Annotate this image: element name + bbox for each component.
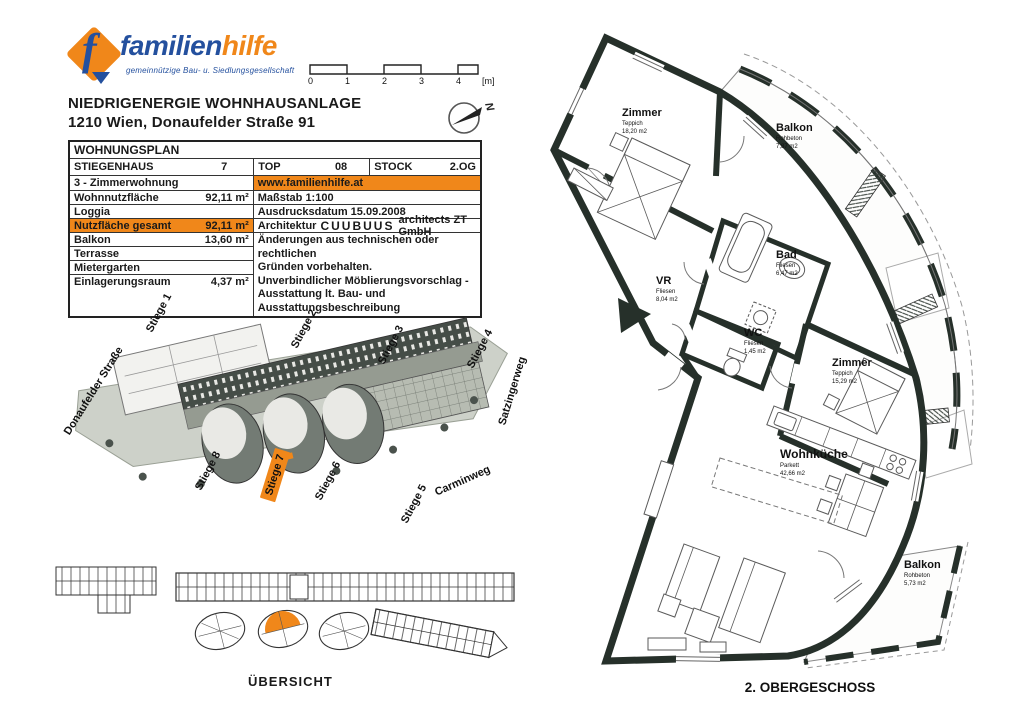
scale-bar-profile — [310, 65, 478, 74]
page-title: NIEDRIGENERGIE WOHNHAUSANLAGE 1210 Wien,… — [68, 94, 361, 132]
logo-word-familien: familien — [120, 30, 222, 61]
row-wohnungstyp: 3 - Zimmerwohnung — [70, 176, 253, 190]
logo-wordmark: familienhilfe — [120, 30, 277, 62]
uebersicht-strips — [40, 555, 520, 670]
left-strip-plan — [56, 567, 156, 613]
balkon2-area: 5,73 m2 — [904, 581, 926, 587]
logo-subtitle: gemeinnützige Bau- u. Siedlungsgesellsch… — [126, 66, 294, 75]
zimmer2-area: 15,29 m2 — [832, 379, 858, 385]
wohnkueche-area: 42,66 m2 — [780, 471, 806, 477]
right-strip-plan — [371, 609, 509, 660]
siteplan-overview: Donaufelder Straße Stiege 1 Stiege 2 Sti… — [35, 285, 520, 565]
balkon1-material: Rohbeton — [776, 136, 802, 142]
uebersicht-label: ÜBERSICHT — [248, 674, 333, 689]
vr-name: VR — [656, 275, 671, 287]
row-terrasse: Terrasse — [70, 246, 253, 260]
floorplan-caption: 2. OBERGESCHOSS — [745, 680, 876, 695]
north-letter: N — [482, 101, 496, 113]
siteplan-drawing — [35, 285, 520, 565]
north-arrow-icon: N — [440, 90, 500, 146]
apartment-outline — [554, 38, 924, 661]
balkon2-name: Balkon — [904, 559, 941, 571]
svg-text:2: 2 — [382, 76, 387, 86]
zimmer1-area: 18,20 m2 — [622, 129, 648, 135]
row-loggia: Loggia — [70, 204, 253, 218]
scale-bar: 0 1 2 3 4 [m] — [306, 54, 506, 86]
building-complex — [62, 285, 520, 530]
long-strip-plan — [176, 573, 514, 601]
title-line1: NIEDRIGENERGIE WOHNHAUSANLAGE — [68, 94, 361, 113]
balkon2-material: Rohbeton — [904, 573, 930, 579]
row-nutzflaeche-gesamt: Nutzfläche gesamt92,11 m² — [70, 218, 253, 232]
stock-cell: STOCK 2.OG — [369, 159, 480, 175]
familienhilfe-logo: f familienhilfe gemeinnützige Bau- u. Si… — [72, 28, 332, 88]
row-balkon: Balkon13,60 m² — [70, 232, 253, 246]
apartment-floorplan: Zimmer Teppich 18,20 m2 Balkon Rohbeton … — [548, 6, 1020, 718]
balkon1-area: 7,87 m2 — [776, 144, 798, 150]
wc-area: 1,45 m2 — [744, 349, 766, 355]
bad-name: Bad — [776, 249, 797, 261]
balkon1-name: Balkon — [776, 122, 813, 134]
svg-text:1: 1 — [345, 76, 350, 86]
wohnkueche-name: Wohnküche — [780, 447, 848, 461]
zimmer2-material: Teppich — [832, 371, 853, 377]
highlighted-oval — [254, 605, 311, 652]
zimmer1-name: Zimmer — [622, 107, 662, 119]
zimmer1-material: Teppich — [622, 121, 643, 127]
table-header: WOHNUNGSPLAN — [70, 142, 480, 158]
bad-material: Fliesen — [776, 263, 795, 269]
svg-text:4: 4 — [456, 76, 461, 86]
logo-word-hilfe: hilfe — [222, 30, 277, 61]
vr-area: 8,04 m2 — [656, 297, 678, 303]
bad-area: 6,47 m2 — [776, 271, 798, 277]
row-mietergarten: Mietergarten — [70, 260, 253, 274]
title-line2: 1210 Wien, Donaufelder Straße 91 — [68, 113, 361, 132]
zimmer2-name: Zimmer — [832, 357, 872, 369]
oval-plans — [191, 605, 372, 654]
architektur-cell: Architektur CUUBUUS architects ZT GmbH — [254, 218, 480, 232]
wohnkueche-material: Parkett — [780, 463, 799, 469]
logo-f-glyph: f — [82, 24, 97, 75]
stiegenhaus-cell: STIEGENHAUS 7 — [70, 159, 253, 175]
wohnungsplan-document: { "logo": { "f_glyph": "f", "word_part1"… — [0, 0, 1024, 724]
wc-name: WC — [744, 327, 762, 339]
cuubuus-brand: CUUBUUS — [320, 219, 394, 233]
wc-material: Fliesen — [744, 341, 763, 347]
massstab-cell: Maßstab 1:100 — [254, 190, 480, 204]
vr-material: Fliesen — [656, 289, 675, 295]
svg-text:3: 3 — [419, 76, 424, 86]
scale-bar-unit: [m] — [482, 76, 495, 86]
website-cell: www.familienhilfe.at — [254, 176, 480, 190]
top-cell: TOP 08 — [253, 159, 369, 175]
row-wohnnutzflaeche: Wohnnutzfläche92,11 m² — [70, 190, 253, 204]
scale-bar-ticks: 0 1 2 3 4 [m] — [308, 76, 495, 86]
svg-text:0: 0 — [308, 76, 313, 86]
